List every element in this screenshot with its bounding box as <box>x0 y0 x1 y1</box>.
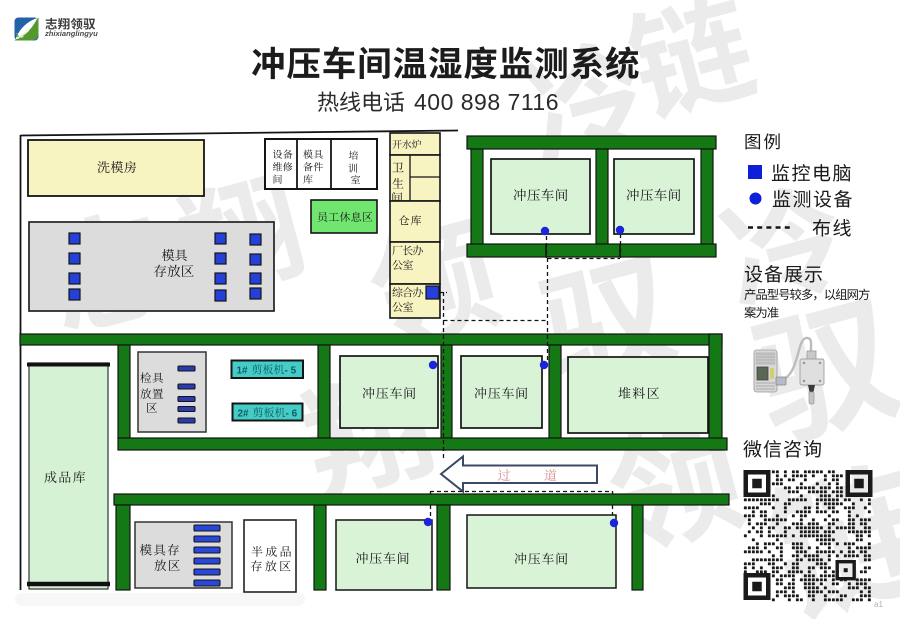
svg-text:1#: 1# <box>237 366 249 377</box>
svg-text:- 5: - 5 <box>285 366 297 377</box>
svg-text:zhixianglingyu: zhixianglingyu <box>44 29 98 38</box>
svg-text:2#: 2# <box>238 409 250 420</box>
svg-text:400 898 7116: 400 898 7116 <box>414 89 559 115</box>
svg-text:a1: a1 <box>874 600 883 609</box>
svg-text:- 6: - 6 <box>286 409 298 420</box>
